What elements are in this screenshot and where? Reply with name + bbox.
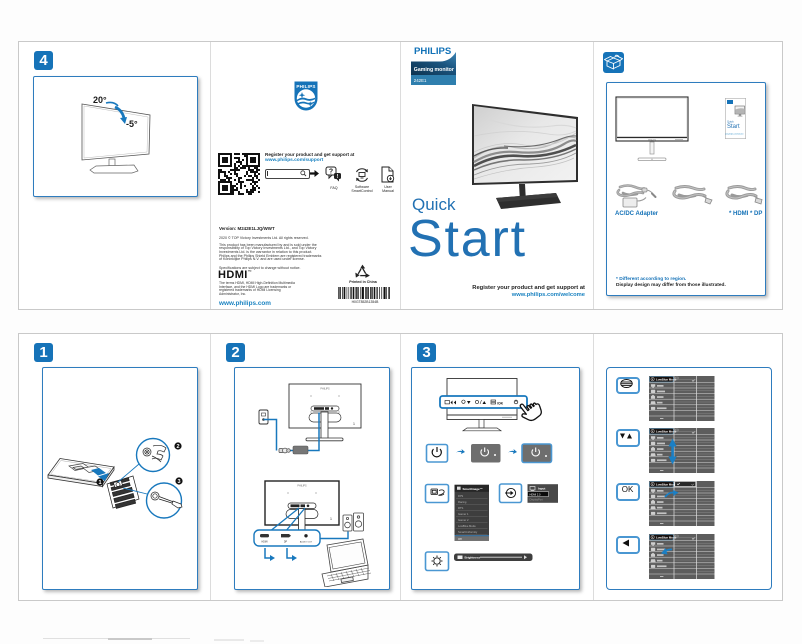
svg-text:Quick: Quick — [727, 120, 734, 124]
svg-text:!: ! — [337, 174, 339, 180]
svg-text:AUDIO OUT: AUDIO OUT — [300, 541, 313, 544]
svg-text:www.philips.com/welcome: www.philips.com/welcome — [725, 134, 744, 136]
svg-text:DisplayPort: DisplayPort — [530, 498, 544, 502]
svg-text:3: 3 — [177, 479, 180, 485]
svg-text:Gamer 2: Gamer 2 — [458, 518, 469, 522]
svg-text:FPS: FPS — [458, 494, 463, 498]
svg-text:Input: Input — [538, 487, 545, 491]
svg-text:1: 1 — [98, 480, 101, 486]
svg-text:RTS: RTS — [458, 506, 464, 510]
svg-text:1: 1 — [353, 422, 355, 426]
svg-text:Off: Off — [458, 537, 462, 541]
svg-text:Gaming monitor: Gaming monitor — [414, 67, 454, 73]
svg-text:Gamer 1: Gamer 1 — [458, 512, 469, 516]
svg-text:/OK: /OK — [497, 401, 504, 405]
svg-text:LowBlue Mode: LowBlue Mode — [458, 524, 476, 528]
svg-text:PHILIPS: PHILIPS — [320, 388, 330, 391]
svg-text:20°: 20° — [93, 95, 107, 105]
svg-text:PHILIPS: PHILIPS — [648, 140, 656, 142]
svg-text:DP: DP — [284, 541, 288, 544]
svg-text:Racing: Racing — [458, 500, 467, 504]
svg-text:-5°: -5° — [126, 119, 138, 129]
svg-text:?: ? — [329, 169, 333, 176]
svg-text:SmartUniformity: SmartUniformity — [458, 530, 478, 534]
svg-text:PHILIPS: PHILIPS — [296, 84, 315, 89]
svg-text:242E1: 242E1 — [414, 78, 427, 83]
svg-text:Brightness: Brightness — [465, 556, 481, 560]
svg-text:2: 2 — [176, 444, 179, 450]
svg-text:1: 1 — [330, 517, 332, 521]
svg-text:PHILIPS: PHILIPS — [297, 485, 307, 488]
svg-text:SmartImage™: SmartImage™ — [463, 487, 483, 491]
svg-text:HDMI 2.0: HDMI 2.0 — [530, 492, 542, 496]
svg-text:HDMI: HDMI — [261, 541, 267, 544]
svg-text:Start: Start — [727, 124, 740, 130]
